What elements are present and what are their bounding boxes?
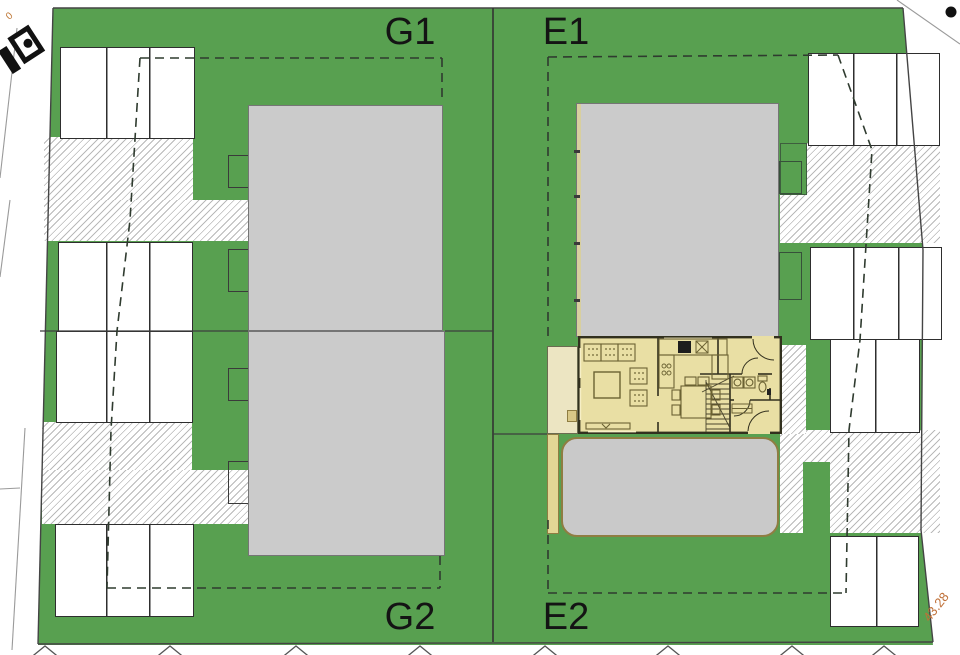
dashed-garden-boundaries — [107, 55, 872, 593]
dashed-g-west — [107, 58, 140, 588]
plot-label-g1: G1 — [378, 12, 442, 52]
plot-label-e2: E2 — [534, 597, 598, 637]
survey-point-dot — [946, 7, 957, 18]
boundary-lines-overlay — [0, 0, 960, 655]
site-plan-canvas: G1 E1 G2 E2 43.28 0 — [0, 0, 960, 655]
road-edge-lines — [0, 0, 960, 650]
e1-window-ticks — [574, 150, 580, 302]
plot-label-e1: E1 — [534, 12, 598, 52]
site-boundary-lines — [38, 8, 933, 644]
dashed-e-top — [548, 55, 838, 57]
dashed-e-east — [838, 55, 872, 593]
survey-stamp-dot — [22, 37, 34, 49]
plot-label-g2: G2 — [378, 597, 442, 637]
boundary-chevrons — [29, 646, 900, 655]
